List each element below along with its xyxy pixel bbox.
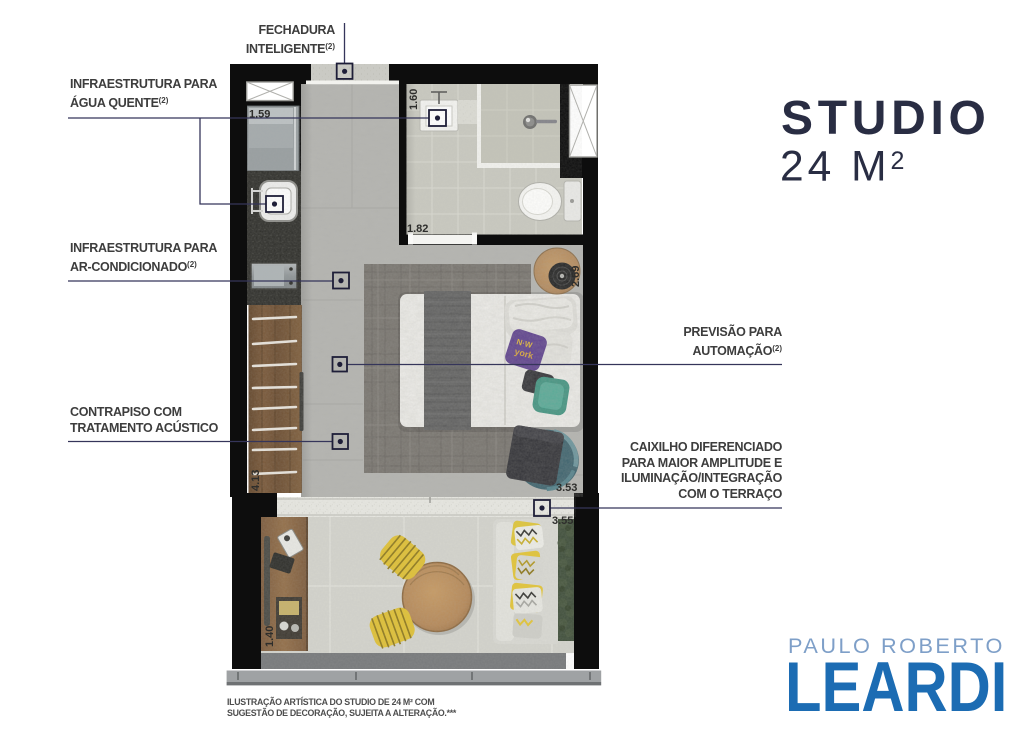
svg-text:1.59: 1.59 [249, 109, 270, 121]
svg-text:1.82: 1.82 [407, 223, 428, 235]
svg-text:3.55: 3.55 [552, 515, 573, 527]
svg-text:1.40: 1.40 [264, 626, 276, 647]
svg-text:4.13: 4.13 [250, 470, 262, 491]
svg-text:2.69: 2.69 [570, 266, 582, 287]
svg-text:1.60: 1.60 [408, 89, 420, 110]
